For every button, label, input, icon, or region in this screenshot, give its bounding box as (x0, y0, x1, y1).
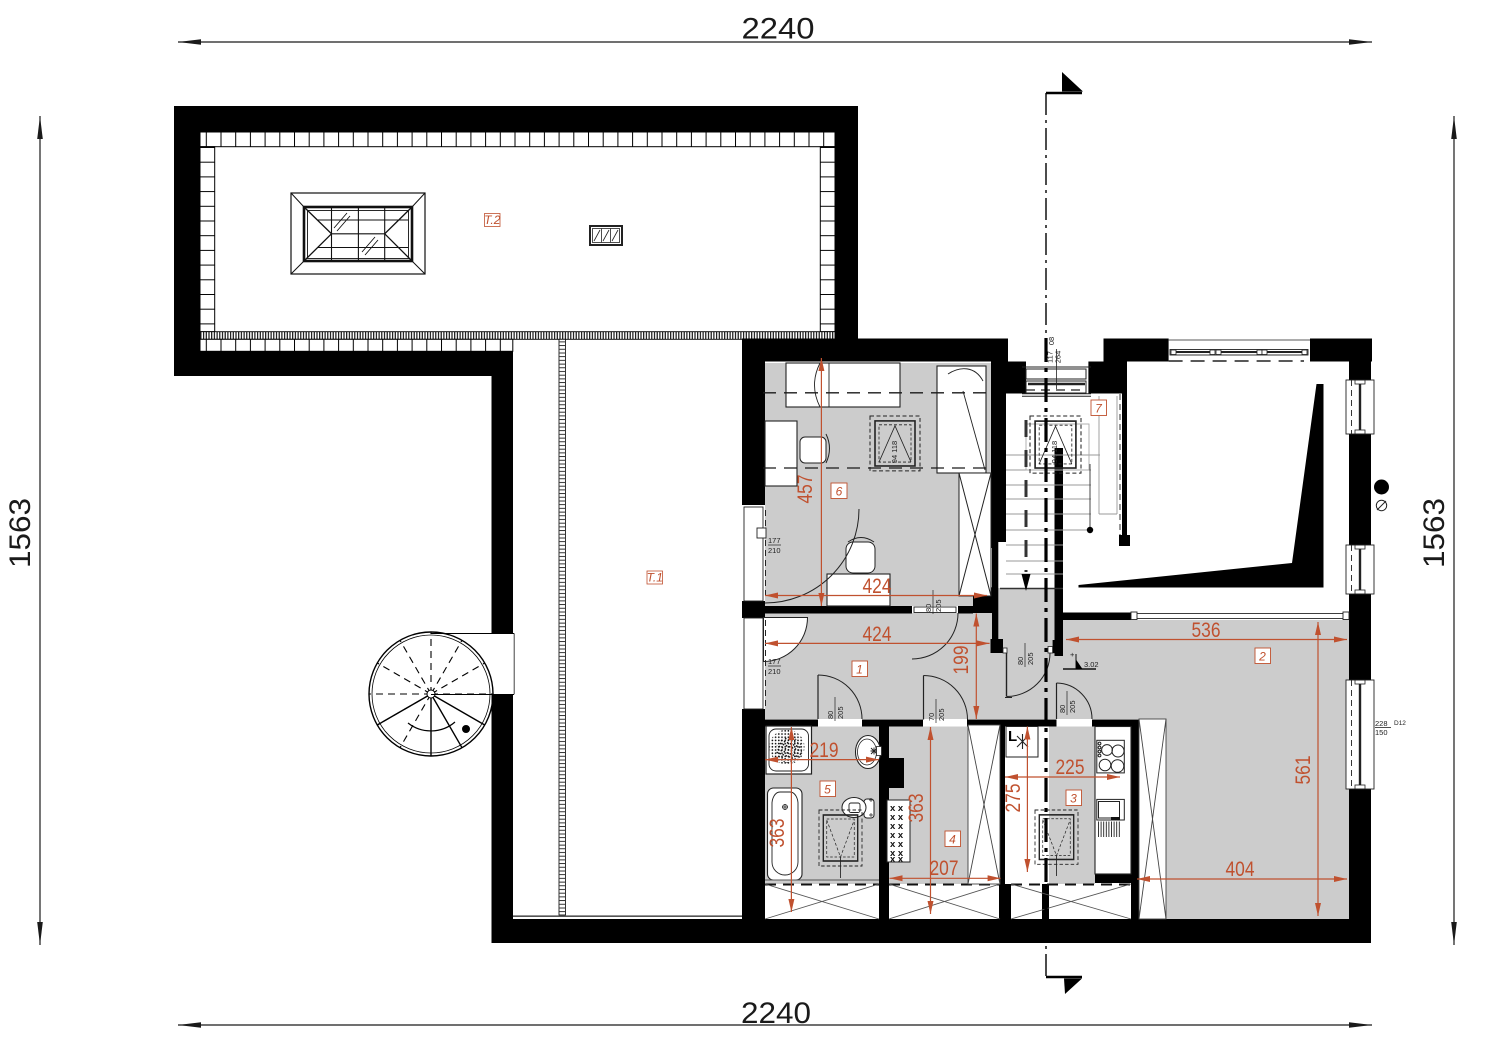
svg-text:L: L (1008, 728, 1017, 745)
svg-text:205: 205 (1068, 700, 1077, 713)
svg-text:219: 219 (810, 739, 839, 762)
svg-text:363: 363 (905, 794, 928, 823)
svg-text:275: 275 (1002, 784, 1025, 813)
svg-text:3.02: 3.02 (1084, 660, 1099, 669)
svg-text:T.2: T.2 (484, 213, 501, 227)
svg-text:80: 80 (1016, 657, 1025, 665)
svg-text:6: 6 (836, 485, 843, 499)
svg-text:177: 177 (768, 536, 781, 545)
svg-text:5: 5 (824, 783, 831, 797)
svg-text:536: 536 (1192, 619, 1221, 642)
svg-text:205: 205 (934, 599, 943, 612)
svg-text:D12: D12 (1394, 720, 1406, 727)
svg-text:404: 404 (1226, 858, 1255, 881)
svg-text:1563: 1563 (4, 498, 37, 568)
svg-text:424: 424 (863, 575, 892, 598)
svg-text:70: 70 (927, 713, 936, 721)
svg-text:561: 561 (1292, 756, 1315, 785)
svg-text:2: 2 (1258, 650, 1266, 664)
svg-text:+: + (1070, 650, 1075, 659)
svg-text:80: 80 (826, 711, 835, 719)
svg-text:1: 1 (856, 663, 863, 677)
svg-text:228: 228 (1375, 719, 1388, 728)
svg-text:264: 264 (1054, 351, 1063, 364)
svg-text:94 118: 94 118 (1050, 441, 1059, 463)
svg-text:363: 363 (766, 819, 789, 848)
svg-text:2240: 2240 (742, 13, 815, 46)
svg-text:424: 424 (863, 623, 892, 646)
svg-text:150: 150 (1375, 728, 1388, 737)
svg-text:80: 80 (1058, 705, 1067, 713)
svg-text:205: 205 (836, 706, 845, 719)
svg-text:4: 4 (949, 833, 956, 847)
svg-text:94 118: 94 118 (890, 441, 899, 463)
svg-text:2240: 2240 (741, 997, 811, 1030)
svg-text:80: 80 (924, 604, 933, 612)
svg-text:457: 457 (794, 475, 817, 504)
svg-text:210: 210 (768, 667, 781, 676)
svg-text:205: 205 (937, 708, 946, 721)
svg-text:1563: 1563 (1418, 498, 1451, 568)
svg-text:207: 207 (930, 857, 959, 880)
svg-text:225: 225 (1056, 756, 1085, 779)
svg-text:08: 08 (1047, 337, 1056, 345)
svg-text:3: 3 (1070, 792, 1077, 806)
svg-text:x x: x x (890, 854, 904, 865)
svg-text:199: 199 (950, 646, 973, 675)
svg-text:177: 177 (768, 657, 781, 666)
svg-text:T.1: T.1 (647, 571, 663, 585)
svg-text:210: 210 (768, 546, 781, 555)
svg-text:205: 205 (1026, 652, 1035, 665)
